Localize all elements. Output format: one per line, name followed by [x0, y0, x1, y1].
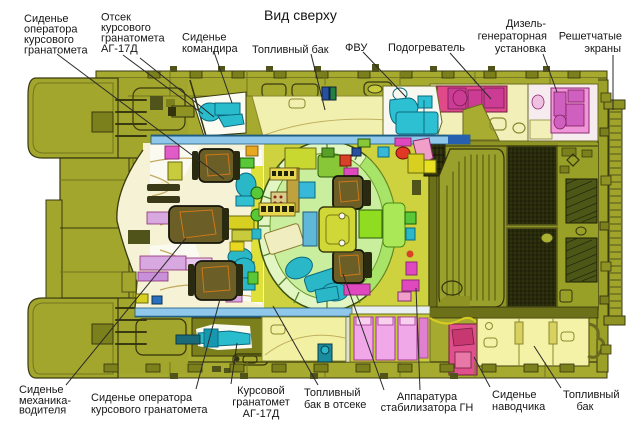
svg-text:АГ-17Д: АГ-17Д — [101, 43, 138, 55]
svg-text:водителя: водителя — [19, 405, 66, 417]
svg-text:Топливный: Топливный — [304, 387, 360, 399]
svg-text:стабилизатора ГН: стабилизатора ГН — [381, 402, 474, 414]
svg-text:командира: командира — [182, 43, 238, 55]
svg-text:установка: установка — [495, 43, 547, 55]
svg-text:гранатомета: гранатомета — [24, 45, 88, 57]
svg-text:Сиденье: Сиденье — [182, 32, 227, 44]
svg-text:Дизель-: Дизель- — [506, 18, 546, 30]
svg-text:АГ-17Д: АГ-17Д — [243, 408, 280, 420]
svg-text:Курсовой: Курсовой — [237, 385, 285, 397]
svg-text:генераторная: генераторная — [478, 31, 547, 43]
svg-text:ФВУ: ФВУ — [345, 42, 368, 54]
svg-text:экраны: экраны — [584, 43, 621, 55]
svg-text:Подогреватель: Подогреватель — [388, 42, 465, 54]
svg-text:Вид сверху: Вид сверху — [264, 7, 337, 23]
svg-text:бак: бак — [577, 401, 594, 413]
svg-text:Топливный: Топливный — [563, 389, 619, 401]
svg-text:Сиденье оператора: Сиденье оператора — [91, 392, 193, 404]
svg-text:гранатомет: гранатомет — [232, 397, 290, 409]
svg-text:Сиденье: Сиденье — [492, 389, 537, 401]
svg-text:Топливный бак: Топливный бак — [252, 44, 329, 56]
svg-text:наводчика: наводчика — [492, 401, 546, 413]
svg-text:курсового гранатомета: курсового гранатомета — [91, 404, 208, 416]
svg-text:бак в отсеке: бак в отсеке — [304, 399, 366, 411]
svg-text:Решетчатые: Решетчатые — [559, 31, 622, 43]
